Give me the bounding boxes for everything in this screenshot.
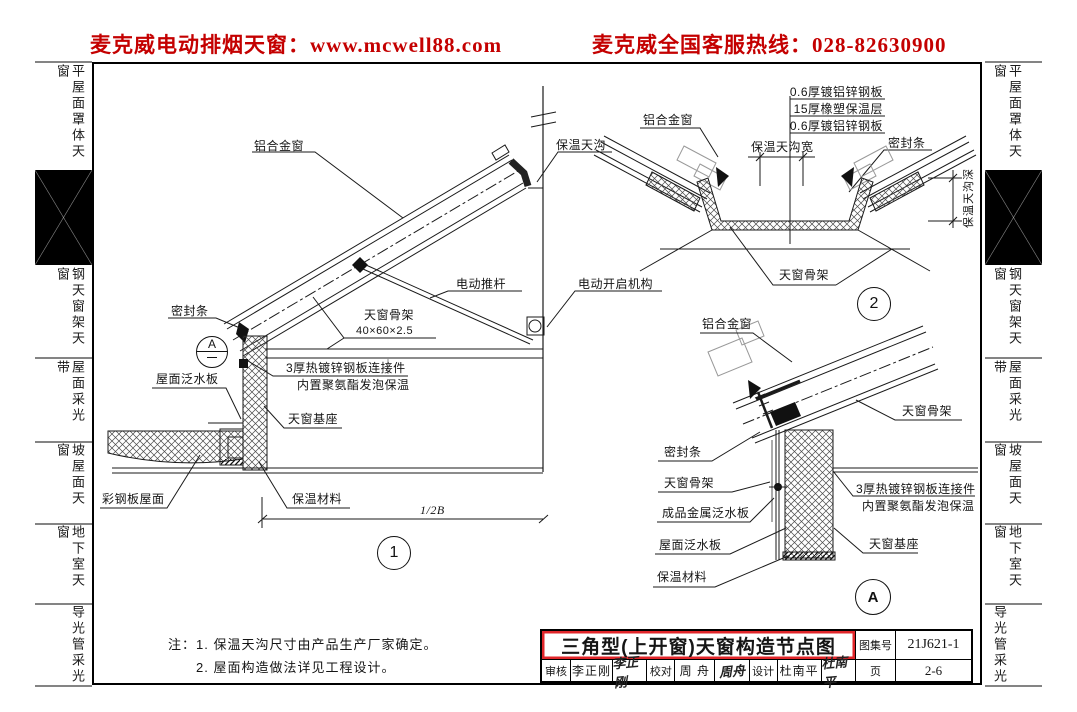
label-aluminum-window: 铝合金窗 <box>702 317 752 331</box>
label-insulation: 保温材料 <box>292 492 342 506</box>
sheet-notes: 注： 1. 保温天沟尺寸由产品生产厂家确定。 2. 屋面构造做法详见工程设计。 <box>168 633 437 679</box>
label-electric-opener: 电动开启机构 <box>578 277 653 291</box>
note-item-2: 2. 屋面构造做法详见工程设计。 <box>196 656 437 679</box>
note-item-1: 1. 保温天沟尺寸由产品生产厂家确定。 <box>196 633 437 656</box>
sidebar-divider <box>35 61 92 63</box>
sidebar-active-tab <box>985 170 1042 265</box>
label-electric-push-rod: 电动推杆 <box>456 277 506 291</box>
label-aluminum-window: 铝合金窗 <box>254 139 304 153</box>
sidebar-item-roof-lighting-band: 屋面采光带 <box>985 360 1042 439</box>
sidebar-item-light-tube: 导光管采光 <box>35 605 92 685</box>
sidebar-divider <box>35 357 92 359</box>
sidebar-item-sloped-roof-skylight: 坡屋面天窗 <box>35 443 92 521</box>
label-gutter-width: 保温天沟宽 <box>751 140 814 154</box>
title-block-row2: 审核 李正刚 李正刚 校对 周 舟 周舟 设计 杜南平 杜南平 页 2-6 <box>542 659 971 681</box>
label-skylight-frame: 天窗骨架 <box>779 268 829 282</box>
notes-prefix: 注： <box>168 633 196 679</box>
page-number: 2-6 <box>895 660 971 681</box>
label-steel-roof: 彩钢板屋面 <box>102 492 165 506</box>
label-skylight-frame-left: 天窗骨架 <box>664 476 714 490</box>
detail1-number-bubble: 1 <box>377 536 411 570</box>
label-seal-strip: 密封条 <box>888 136 926 150</box>
label-layer1: 0.6厚镀铝锌钢板 <box>775 85 883 99</box>
drawing-frame <box>92 62 982 685</box>
label-skylight-frame: 天窗骨架 <box>364 308 414 322</box>
label-roof-flashing: 屋面泛水板 <box>659 538 722 552</box>
header-left-text: 麦克威电动排烟天窗：www.mcwell88.com <box>90 29 502 59</box>
review-label: 审核 <box>542 660 570 681</box>
atlas-number-value: 21J621-1 <box>895 631 971 659</box>
sidebar-item-light-tube: 导光管采光 <box>985 605 1042 685</box>
atlas-number-label: 图集号 <box>855 631 895 659</box>
sidebar-divider <box>985 61 1042 63</box>
label-skylight-base: 天窗基座 <box>288 412 338 426</box>
label-frame-size: 40×60×2.5 <box>356 324 413 338</box>
label-skylight-base: 天窗基座 <box>869 537 919 551</box>
sheet-title: 三角型(上开窗)天窗构造节点图 <box>542 631 855 659</box>
detail-marker-dash <box>207 357 217 358</box>
label-insulation: 保温材料 <box>657 570 707 584</box>
proof-label: 校对 <box>646 660 674 681</box>
label-connector-line2: 内置聚氨酯发泡保温 <box>862 499 975 513</box>
sidebar-item-basement-skylight: 地下室天窗 <box>985 525 1042 601</box>
sidebar-item-flat-roof-skylight: 平屋面罩体天窗 <box>35 64 92 168</box>
label-layer3: 0.6厚镀铝锌钢板 <box>775 119 883 133</box>
header-right-text: 麦克威全国客服热线：028-82630900 <box>592 29 947 59</box>
drawing-sheet-page: 麦克威电动排烟天窗：www.mcwell88.com 麦克威全国客服热线：028… <box>0 0 1077 712</box>
sidebar-divider <box>985 685 1042 687</box>
sidebar-item-steel-frame-skylight: 钢天窗架天窗 <box>985 267 1042 356</box>
page-label: 页 <box>855 660 895 681</box>
label-connector-line2: 内置聚氨酯发泡保温 <box>297 378 410 392</box>
label-dim-half-b: 1/2B <box>420 503 445 517</box>
proof-name: 周 舟 <box>674 660 714 681</box>
design-signature: 杜南平 <box>821 660 855 681</box>
title-block-row1: 三角型(上开窗)天窗构造节点图 图集号 21J621-1 <box>542 631 971 659</box>
label-skylight-frame-right: 天窗骨架 <box>902 404 952 418</box>
design-label: 设计 <box>749 660 777 681</box>
proof-signature: 周舟 <box>714 660 748 681</box>
detail-marker-A: A <box>196 336 228 368</box>
sidebar-item-flat-roof-skylight: 平屋面罩体天窗 <box>985 64 1042 168</box>
review-name: 李正刚 <box>570 660 612 681</box>
label-insulated-gutter: 保温天沟 <box>556 138 606 152</box>
detail2-number-bubble: 2 <box>857 287 891 321</box>
label-layer2: 15厚橡塑保温层 <box>775 102 883 116</box>
nodeA-letter-bubble: A <box>855 579 891 615</box>
sidebar-item-roof-lighting-band: 屋面采光带 <box>35 360 92 439</box>
review-signature: 李正刚 <box>612 660 646 681</box>
label-gutter-depth: 保温天沟深 <box>960 168 976 228</box>
label-roof-flashing: 屋面泛水板 <box>156 372 219 386</box>
sidebar-item-sloped-roof-skylight: 坡屋面天窗 <box>985 443 1042 521</box>
label-seal-strip: 密封条 <box>171 304 209 318</box>
label-connector-line1: 3厚热镀锌钢板连接件 <box>286 361 406 375</box>
sidebar-item-steel-frame-skylight: 钢天窗架天窗 <box>35 267 92 356</box>
sidebar-divider <box>985 357 1042 359</box>
sidebar-divider <box>35 685 92 687</box>
sidebar-item-basement-skylight: 地下室天窗 <box>35 525 92 601</box>
label-connector-line1: 3厚热镀锌钢板连接件 <box>856 482 976 496</box>
label-seal-strip: 密封条 <box>664 445 702 459</box>
design-name: 杜南平 <box>777 660 821 681</box>
title-block: 三角型(上开窗)天窗构造节点图 图集号 21J621-1 审核 李正刚 李正刚 … <box>540 629 973 683</box>
sidebar-active-tab <box>35 170 92 265</box>
label-metal-flashing: 成品金属泛水板 <box>662 506 750 520</box>
detail-marker-divider <box>197 351 227 352</box>
label-aluminum-window: 铝合金窗 <box>643 113 693 127</box>
